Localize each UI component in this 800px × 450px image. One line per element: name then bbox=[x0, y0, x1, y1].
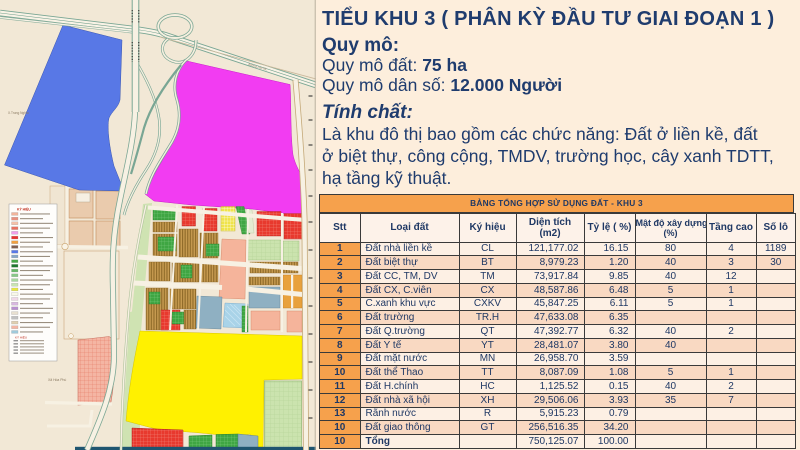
svg-text:KÝ HIỆU: KÝ HIỆU bbox=[17, 207, 31, 212]
svg-text:Xã Hòa Phú: Xã Hòa Phú bbox=[48, 378, 66, 382]
svg-text:X.Trung Nghĩa: X.Trung Nghĩa bbox=[8, 111, 29, 115]
svg-text:KÝ HIỆU: KÝ HIỆU bbox=[15, 335, 27, 340]
